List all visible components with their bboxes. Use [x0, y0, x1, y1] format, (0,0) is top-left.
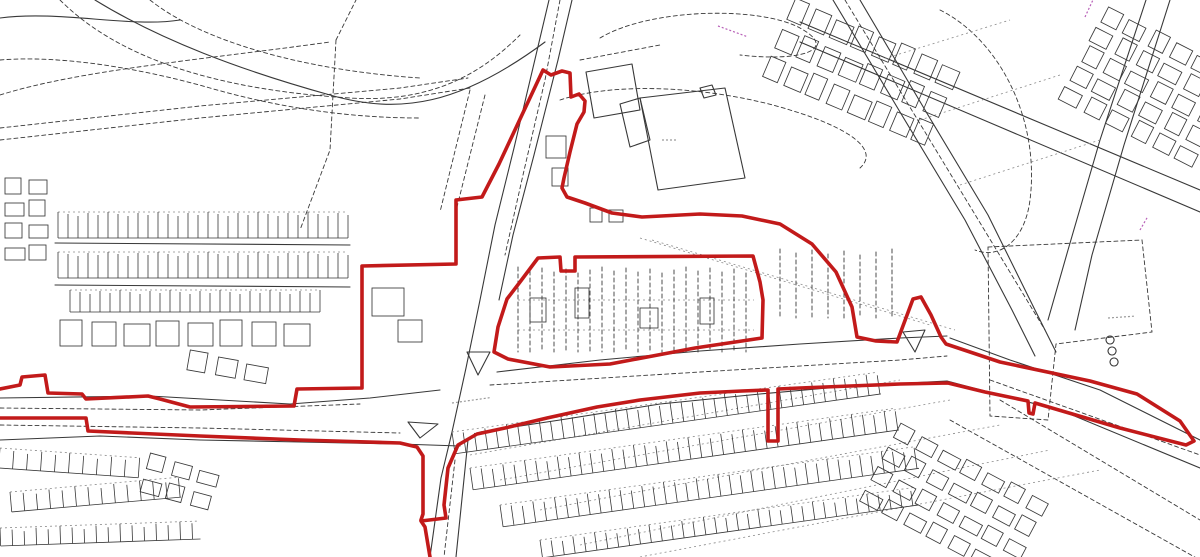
- tiny-label-marks-layer: [452, 1, 1147, 403]
- map-canvas: [0, 0, 1200, 557]
- base-map-layer: [0, 0, 1200, 557]
- site-location-plan: [0, 0, 1200, 557]
